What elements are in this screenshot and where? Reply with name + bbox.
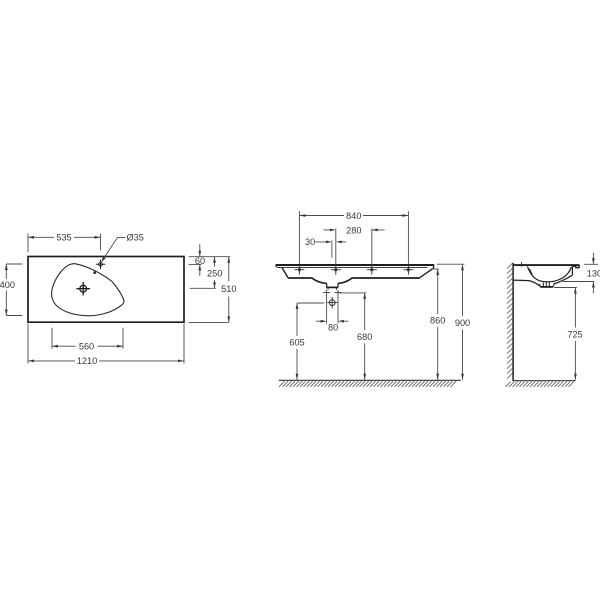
svg-text:30: 30	[305, 237, 315, 247]
svg-text:400: 400	[0, 280, 15, 290]
svg-text:535: 535	[56, 233, 71, 243]
svg-text:Ø35: Ø35	[127, 233, 144, 243]
svg-text:250: 250	[207, 269, 222, 279]
svg-text:725: 725	[567, 330, 582, 340]
svg-text:130: 130	[587, 269, 600, 279]
svg-text:60: 60	[195, 256, 205, 266]
svg-text:900: 900	[455, 318, 470, 328]
svg-text:605: 605	[289, 338, 304, 348]
svg-text:1210: 1210	[77, 356, 97, 366]
svg-text:560: 560	[79, 342, 94, 352]
svg-text:860: 860	[430, 316, 445, 326]
svg-text:680: 680	[357, 332, 372, 342]
svg-text:80: 80	[328, 323, 338, 333]
svg-text:840: 840	[346, 211, 361, 221]
svg-text:510: 510	[221, 284, 236, 294]
svg-text:280: 280	[346, 225, 361, 235]
